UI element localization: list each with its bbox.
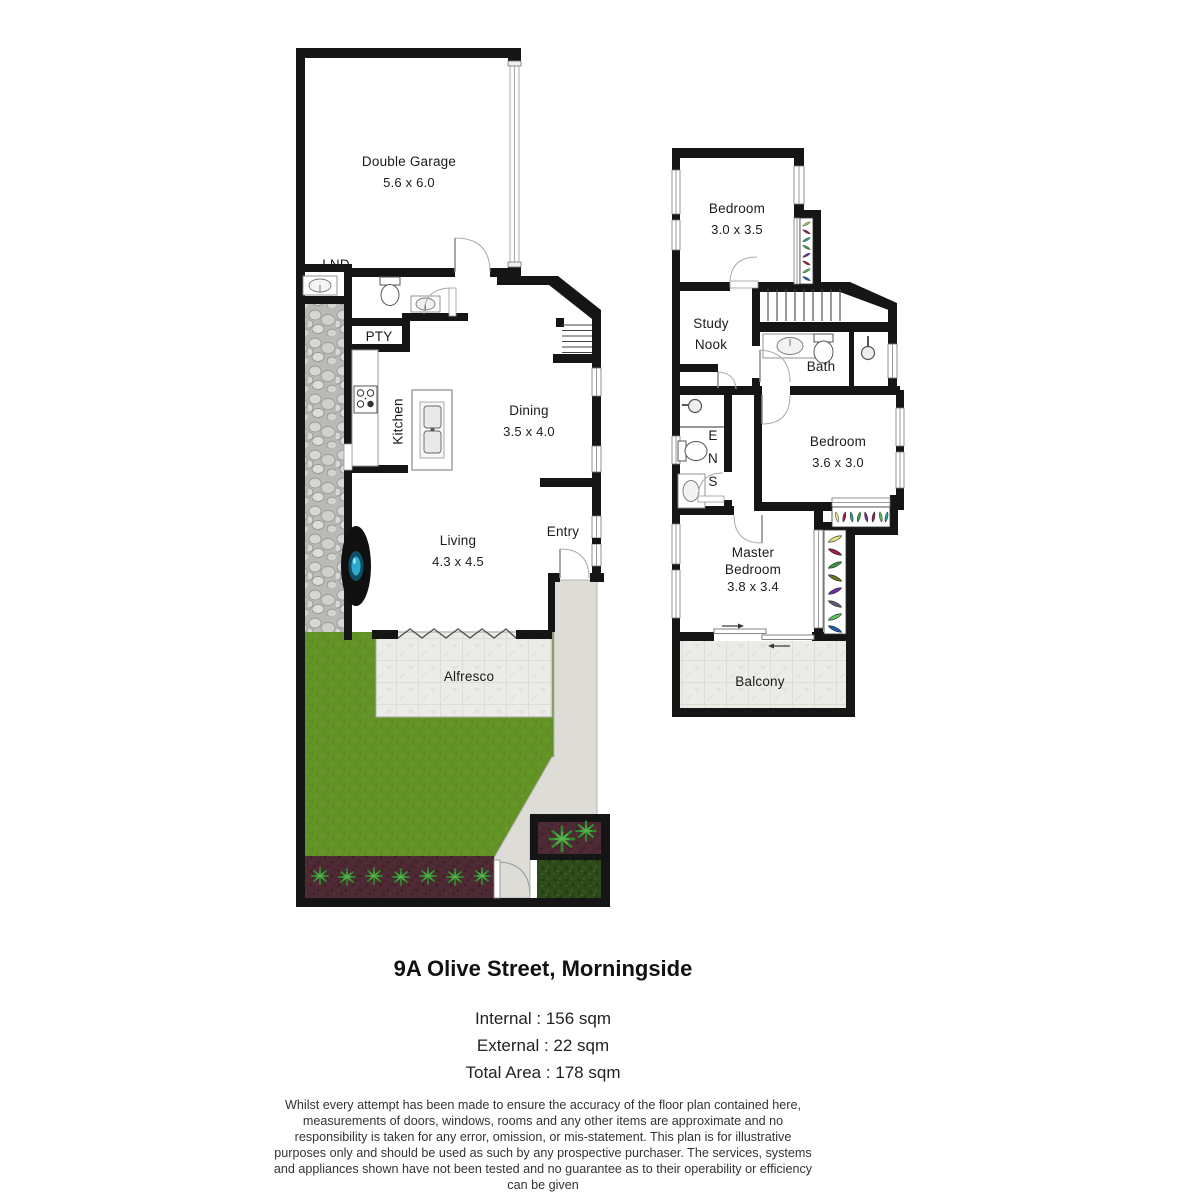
bedroom-front-name: Bedroom (677, 198, 797, 219)
dining-name: Dining (469, 400, 589, 421)
garage-door-icon (508, 61, 521, 267)
internal-area: Internal : 156 sqm (233, 1009, 853, 1029)
disclaimer: Whilst every attempt has been made to en… (273, 1097, 813, 1193)
label-bath: Bath (786, 356, 856, 377)
ensuite-letter-e: E (704, 424, 722, 447)
toilet-icon-powder (380, 277, 400, 306)
planter-bedroom-mid (832, 507, 890, 527)
stairs-icon-upper (768, 289, 840, 321)
label-dining: Dining 3.5 x 4.0 (469, 400, 589, 442)
master-line1: Master (693, 544, 813, 561)
master-dims: 3.8 x 3.4 (693, 578, 813, 595)
door-swing-icon-bedroom-front (730, 281, 758, 288)
label-alfresco: Alfresco (404, 666, 534, 687)
label-master-bedroom: Master Bedroom 3.8 x 3.4 (693, 544, 813, 595)
label-pantry: PTY (359, 326, 399, 347)
page-title: 9A Olive Street, Morningside (233, 956, 853, 982)
label-bedroom-mid: Bedroom 3.6 x 3.0 (778, 431, 898, 473)
bedroom-mid-dims: 3.6 x 3.0 (778, 452, 898, 473)
kitchen-bench (352, 350, 378, 466)
side-door (344, 444, 352, 470)
label-living: Living 4.3 x 4.5 (398, 530, 518, 572)
label-balcony: Balcony (700, 671, 820, 692)
total-area: Total Area : 178 sqm (233, 1063, 853, 1083)
bedroom-mid-name: Bedroom (778, 431, 898, 452)
planter-master (824, 530, 846, 634)
living-dims: 4.3 x 4.5 (398, 551, 518, 572)
hedge (537, 860, 601, 898)
garage-dims: 5.6 x 6.0 (329, 172, 489, 193)
planter-bedroom-front (800, 218, 813, 284)
study-nook-line1: Study (661, 313, 761, 334)
garage-name: Double Garage (329, 151, 489, 172)
island-bench (412, 390, 452, 470)
label-ensuite: E N S (704, 424, 722, 493)
external-area: External : 22 sqm (233, 1036, 853, 1056)
ensuite-letter-s: S (704, 470, 722, 493)
door-swing-icon-ens (698, 496, 724, 502)
stairs-icon-ground (562, 325, 592, 353)
master-line2: Bedroom (693, 561, 813, 578)
label-kitchen: Kitchen (388, 387, 409, 457)
stove-icon (354, 386, 377, 413)
door-swing-icon-entry (560, 549, 589, 578)
ensuite-letter-n: N (704, 447, 722, 470)
label-laundry: LND (316, 254, 356, 275)
basin-icon-ens (683, 481, 699, 502)
living-name: Living (398, 530, 518, 551)
stone-path (304, 302, 344, 635)
bedroom-front-dims: 3.0 x 3.5 (677, 219, 797, 240)
double-sink-icon (424, 406, 441, 428)
water-tank-icon (341, 526, 371, 606)
label-study-nook: Study Nook (661, 313, 761, 355)
label-bedroom-front: Bedroom 3.0 x 3.5 (677, 198, 797, 240)
laundry-tub-icon (303, 276, 337, 295)
door-swing-icon-garage (455, 238, 490, 272)
dining-dims: 3.5 x 4.0 (469, 421, 589, 442)
floorplan-page: Double Garage 5.6 x 6.0 LND PTY Kitchen … (0, 0, 1200, 1200)
label-garage: Double Garage 5.6 x 6.0 (329, 151, 489, 193)
label-entry: Entry (523, 521, 603, 542)
study-nook-line2: Nook (661, 334, 761, 355)
